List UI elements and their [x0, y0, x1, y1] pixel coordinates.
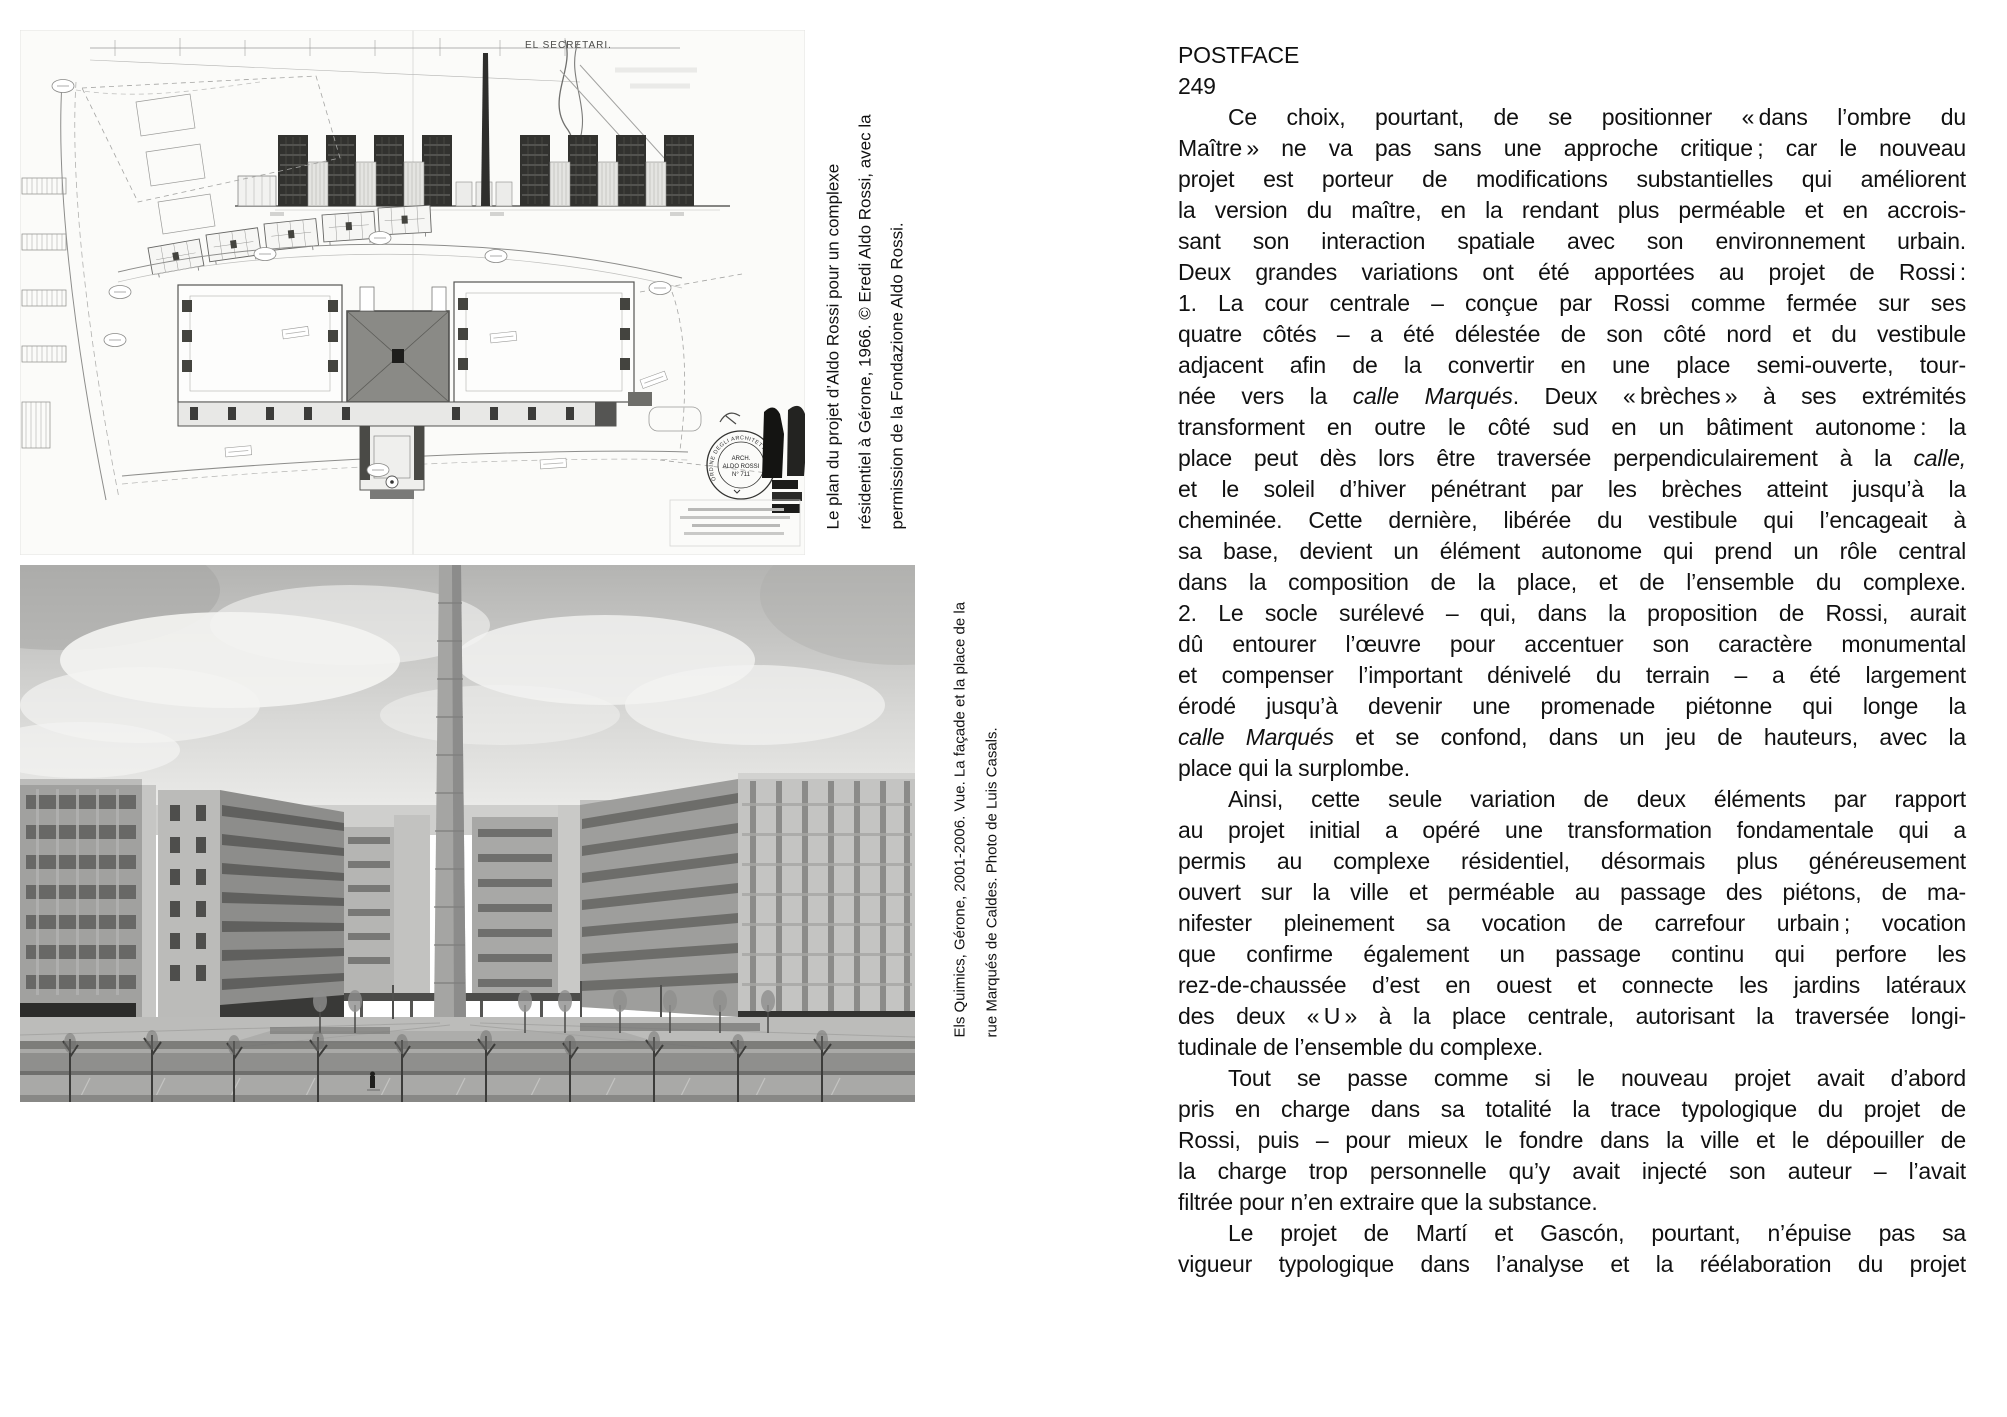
text-segment: ouvert sur la ville et perméable au pass…: [1178, 879, 1966, 905]
text-line: des deux « U » à la place centrale, auto…: [1178, 1001, 1966, 1032]
text-segment: et se confond, dans un jeu de hauteurs, …: [1334, 724, 1966, 750]
text-segment: quatre côtés – a été délestée de son côt…: [1178, 321, 1966, 347]
text-segment: tudinale de l’ensemble du complexe.: [1178, 1034, 1543, 1060]
text-segment: filtrée pour n’en extraire que la substa…: [1178, 1189, 1598, 1215]
text-line: Rossi, puis – pour mieux le fondre dans …: [1178, 1125, 1966, 1156]
text-segment: que confirme également un passage contin…: [1178, 941, 1966, 967]
text-segment: permis au complexe résidentiel, désormai…: [1178, 848, 1966, 874]
italic-text: calle,: [1914, 445, 1967, 471]
text-segment: cheminée. Cette dernière, libérée du ves…: [1178, 507, 1966, 533]
page-title: POSTFACE: [1178, 40, 1966, 71]
text-segment: Tout se passe comme si le nouveau projet…: [1228, 1065, 1966, 1091]
text-segment: dû entourer l’œuvre pour accentuer son c…: [1178, 631, 1966, 657]
text-segment: projet est porteur de modifications subs…: [1178, 166, 1966, 192]
text-line: adjacent afin de la convertir en une pla…: [1178, 350, 1966, 381]
plan-drawing-image: EL SECRETARI.: [20, 30, 805, 555]
text-line: née vers la calle Marqués. Deux « brèche…: [1178, 381, 1966, 412]
text-line: et compenser l’important dénivelé du ter…: [1178, 660, 1966, 691]
caption-line: rue Marqués de Caldes. Photo de Luis Cas…: [977, 543, 1009, 1038]
plan-drawing-figure: EL SECRETARI.: [20, 30, 805, 555]
text-line: quatre côtés – a été délestée de son côt…: [1178, 319, 1966, 350]
italic-text: calle Marqués: [1178, 724, 1334, 750]
text-line: permis au complexe résidentiel, désormai…: [1178, 846, 1966, 877]
text-line: Maître » ne va pas sans une approche cri…: [1178, 133, 1966, 164]
text-line: érodé jusqu’à devenir une promenade piét…: [1178, 691, 1966, 722]
caption-line: Le plan du projet d’Aldo Rossi pour un c…: [818, 75, 850, 530]
text-line: dû entourer l’œuvre pour accentuer son c…: [1178, 629, 1966, 660]
caption-line: résidentiel à Gérone, 1966. © Eredi Aldo…: [850, 75, 882, 530]
text-line: nifester pleinement sa vocation de carre…: [1178, 908, 1966, 939]
text-segment: dans la composition de la place, et de l…: [1178, 569, 1966, 595]
article-body: Ce choix, pourtant, de se positionner « …: [1178, 102, 1966, 1280]
svg-text:N° 711: N° 711: [732, 472, 751, 478]
text-segment: place peut dès lors être traversée perpe…: [1178, 445, 1914, 471]
text-segment: 1. La cour centrale – conçue par Rossi c…: [1178, 290, 1966, 316]
text-line: projet est porteur de modifications subs…: [1178, 164, 1966, 195]
text-line: tudinale de l’ensemble du complexe.: [1178, 1032, 1966, 1063]
text-line: Deux grandes variations ont été apportée…: [1178, 257, 1966, 288]
text-line: ouvert sur la ville et perméable au pass…: [1178, 877, 1966, 908]
book-page: EL SECRETARI.: [0, 0, 2007, 1417]
text-segment: la charge trop personnelle qu’y avait in…: [1178, 1158, 1966, 1184]
text-segment: place qui la surplombe.: [1178, 755, 1410, 781]
text-segment: nifester pleinement sa vocation de carre…: [1178, 910, 1966, 936]
text-line: et le soleil d’hiver pénétrant par les b…: [1178, 474, 1966, 505]
text-segment: adjacent afin de la convertir en une pla…: [1178, 352, 1966, 378]
text-line: transforment en outre le côté sud en un …: [1178, 412, 1966, 443]
italic-text: calle Marqués: [1353, 383, 1513, 409]
text-line: dans la composition de la place, et de l…: [1178, 567, 1966, 598]
text-line: cheminée. Cette dernière, libérée du ves…: [1178, 505, 1966, 536]
photo-figure: [20, 565, 915, 1102]
text-segment: vigueur typologique dans l’analyse et la…: [1178, 1251, 1966, 1277]
text-line: 2. Le socle surélevé – qui, dans la prop…: [1178, 598, 1966, 629]
text-segment: au projet initial a opéré une transforma…: [1178, 817, 1966, 843]
text-column: POSTFACE 249 Ce choix, pourtant, de se p…: [1178, 40, 1966, 1280]
text-segment: érodé jusqu’à devenir une promenade piét…: [1178, 693, 1966, 719]
text-line: pris en charge dans sa totalité la trace…: [1178, 1094, 1966, 1125]
text-line: Tout se passe comme si le nouveau projet…: [1178, 1063, 1966, 1094]
text-segment: Ce choix, pourtant, de se positionner « …: [1228, 104, 1966, 130]
text-line: place peut dès lors être traversée perpe…: [1178, 443, 1966, 474]
text-line: la charge trop personnelle qu’y avait in…: [1178, 1156, 1966, 1187]
text-line: sant son interaction spatiale avec son e…: [1178, 226, 1966, 257]
text-line: sa base, devient un élément autonome qui…: [1178, 536, 1966, 567]
svg-text:ALDO ROSSI: ALDO ROSSI: [723, 464, 760, 470]
text-line: vigueur typologique dans l’analyse et la…: [1178, 1249, 1966, 1280]
text-segment: Rossi, puis – pour mieux le fondre dans …: [1178, 1127, 1966, 1153]
plan-label-secretari: EL SECRETARI.: [525, 40, 612, 51]
text-line: Ainsi, cette seule variation de deux élé…: [1178, 784, 1966, 815]
text-line: 1. La cour centrale – conçue par Rossi c…: [1178, 288, 1966, 319]
text-segment: sant son interaction spatiale avec son e…: [1178, 228, 1966, 254]
text-segment: née vers la: [1178, 383, 1353, 409]
text-line: place qui la surplombe.: [1178, 753, 1966, 784]
plan-caption: Le plan du projet d’Aldo Rossi pour un c…: [818, 75, 914, 530]
caption-line: permission de la Fondazione Aldo Rossi.: [882, 75, 914, 530]
photo-image: [20, 565, 915, 1102]
text-line: au projet initial a opéré une transforma…: [1178, 815, 1966, 846]
text-line: filtrée pour n’en extraire que la substa…: [1178, 1187, 1966, 1218]
svg-text:ARCH.: ARCH.: [732, 456, 751, 462]
text-line: Ce choix, pourtant, de se positionner « …: [1178, 102, 1966, 133]
text-segment: . Deux « brèches » à ses extrémités: [1513, 383, 1966, 409]
text-segment: sa base, devient un élément autonome qui…: [1178, 538, 1966, 564]
photo-caption: Els Quimics, Gérone, 2001-2006. Vue. La …: [945, 543, 1009, 1038]
text-line: Le projet de Martí et Gascón, pourtant, …: [1178, 1218, 1966, 1249]
text-line: la version du maître, en la rendant plus…: [1178, 195, 1966, 226]
text-segment: 2. Le socle surélevé – qui, dans la prop…: [1178, 600, 1966, 626]
text-line: que confirme également un passage contin…: [1178, 939, 1966, 970]
text-segment: rez-de-chaussée d’est en ouest et connec…: [1178, 972, 1966, 998]
text-segment: Deux grandes variations ont été apportée…: [1178, 259, 1966, 285]
text-segment: et le soleil d’hiver pénétrant par les b…: [1178, 476, 1966, 502]
text-line: rez-de-chaussée d’est en ouest et connec…: [1178, 970, 1966, 1001]
text-segment: Ainsi, cette seule variation de deux élé…: [1228, 786, 1966, 812]
text-segment: des deux « U » à la place centrale, auto…: [1178, 1003, 1966, 1029]
text-segment: la version du maître, en la rendant plus…: [1178, 197, 1966, 223]
text-segment: et compenser l’important dénivelé du ter…: [1178, 662, 1966, 688]
text-segment: Maître » ne va pas sans une approche cri…: [1178, 135, 1966, 161]
text-segment: Le projet de Martí et Gascón, pourtant, …: [1228, 1220, 1966, 1246]
text-line: calle Marqués et se confond, dans un jeu…: [1178, 722, 1966, 753]
caption-line: Els Quimics, Gérone, 2001-2006. Vue. La …: [945, 543, 977, 1038]
page-number: 249: [1178, 71, 1966, 102]
text-segment: pris en charge dans sa totalité la trace…: [1178, 1096, 1966, 1122]
text-segment: transforment en outre le côté sud en un …: [1178, 414, 1966, 440]
